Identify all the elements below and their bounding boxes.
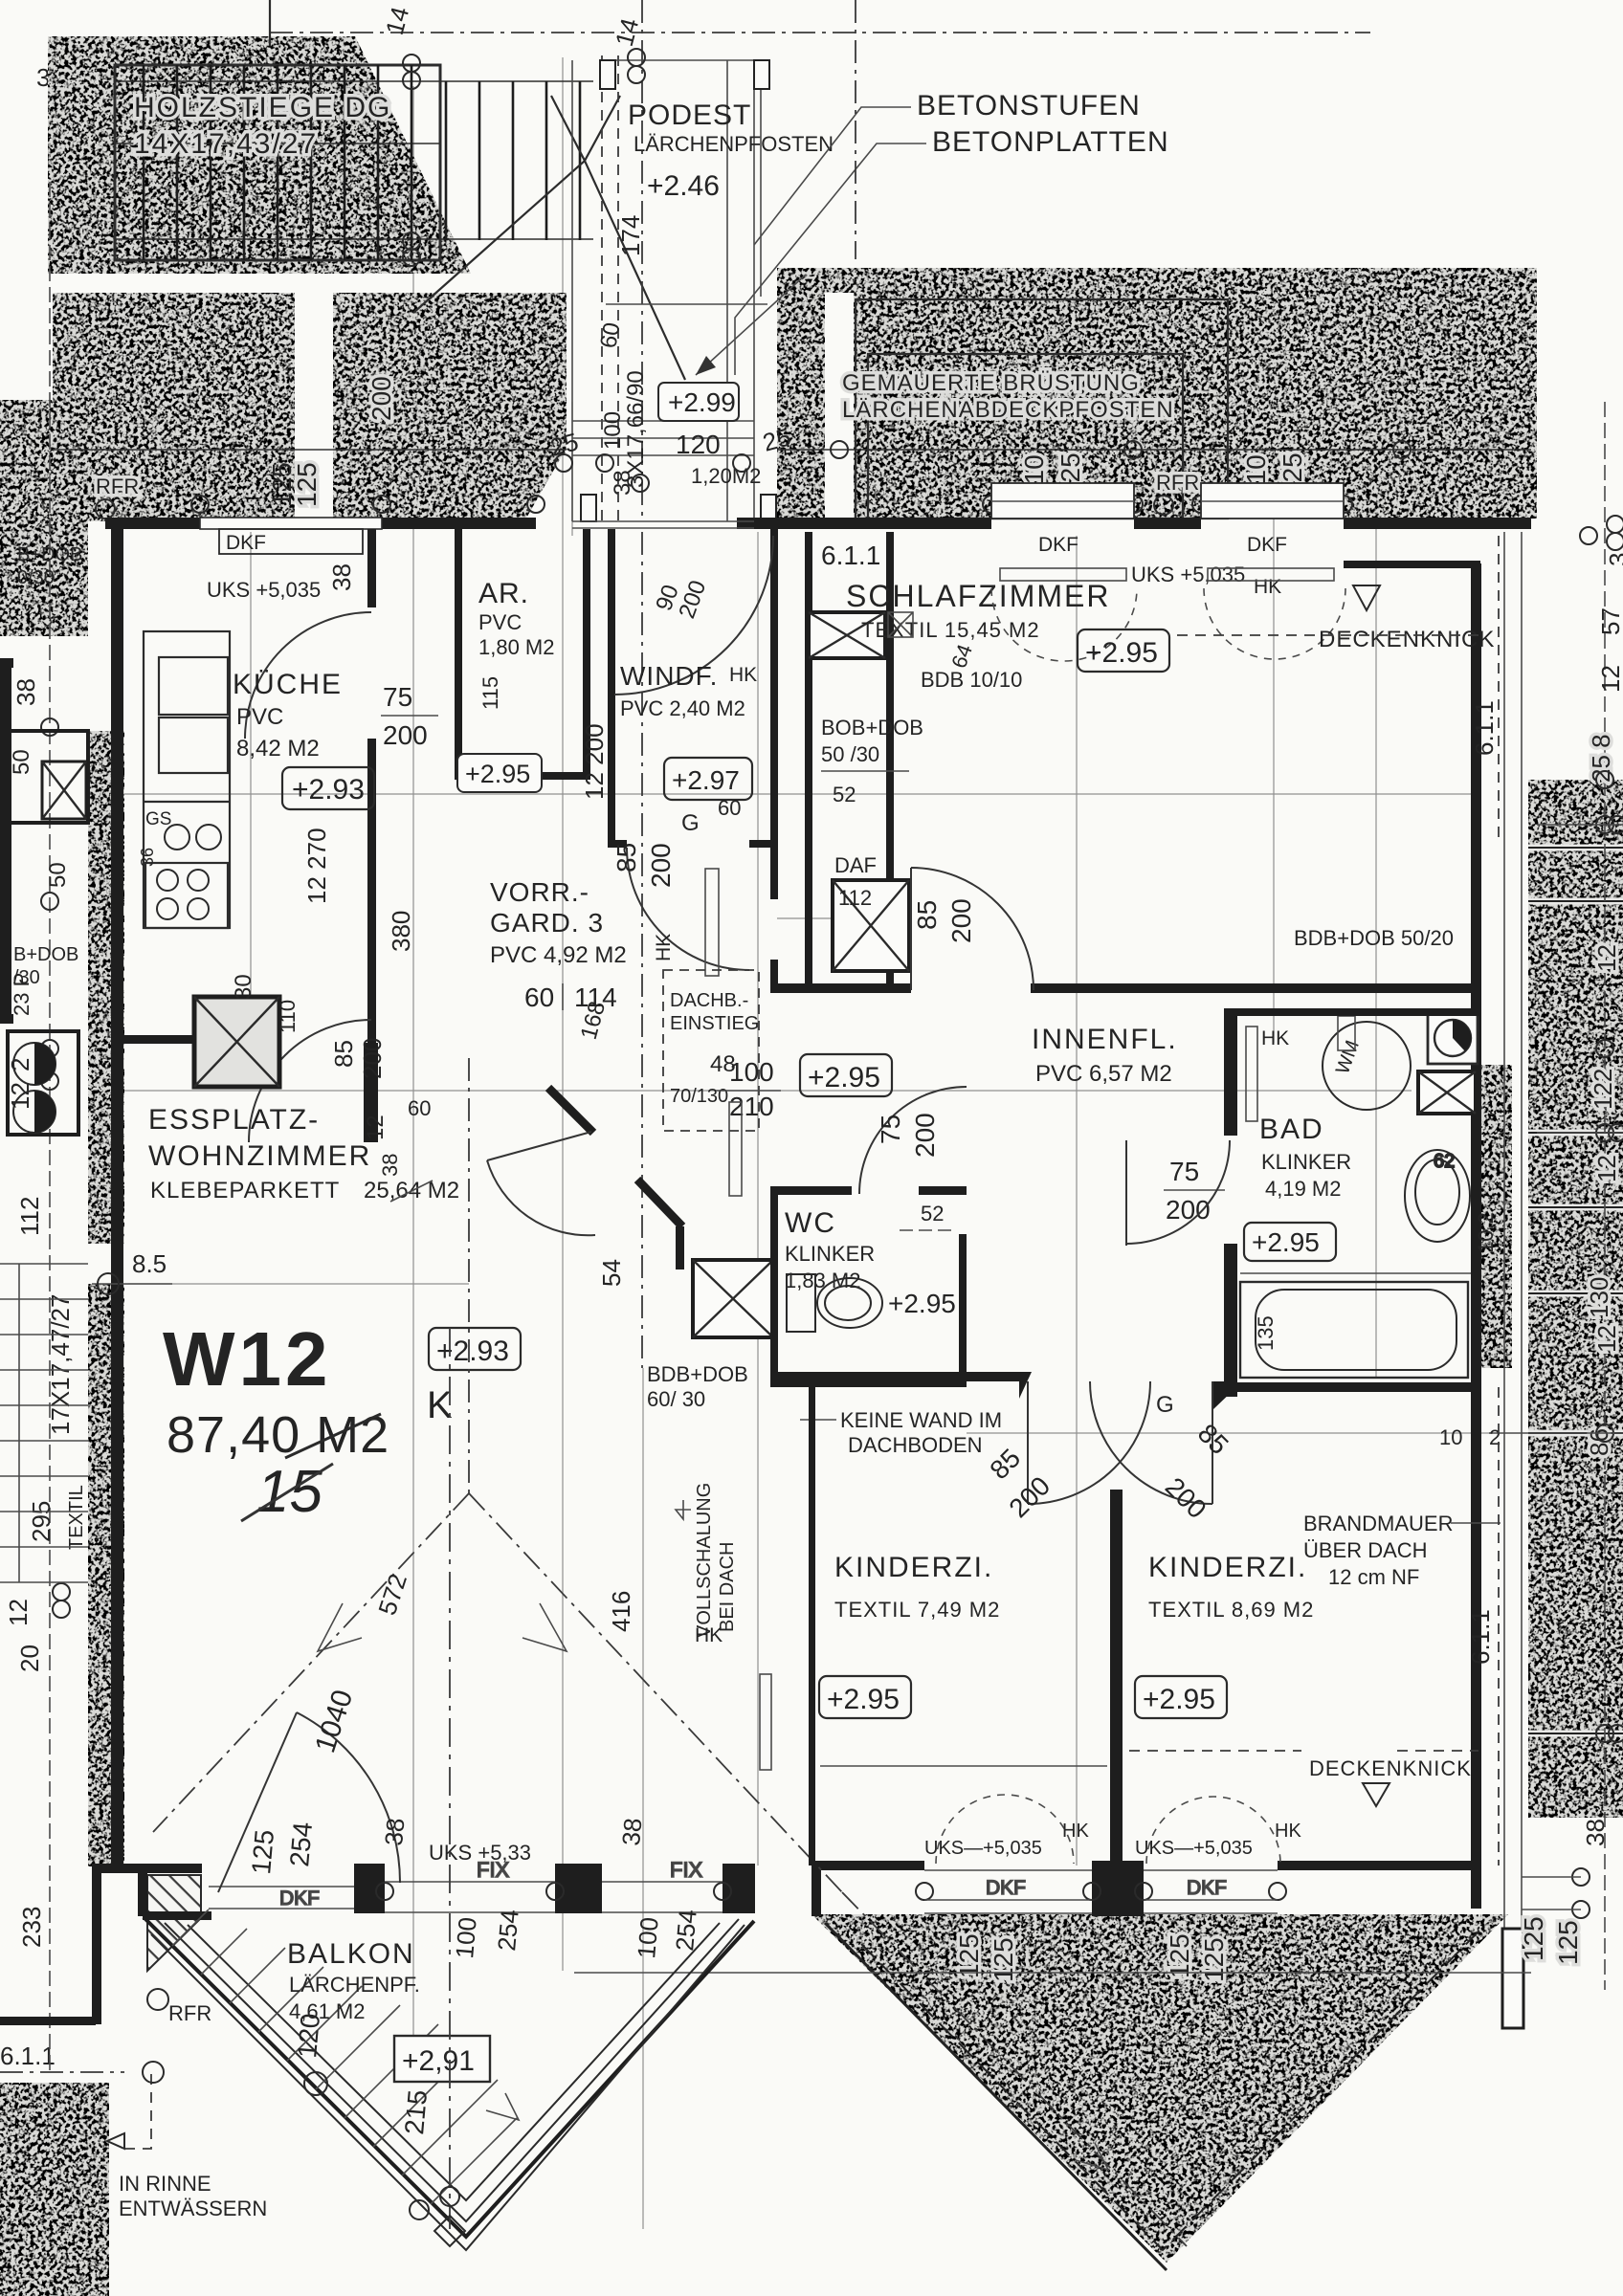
svg-text:100: 100 — [600, 411, 626, 450]
svg-text:87,40 M2: 87,40 M2 — [167, 1406, 389, 1464]
svg-text:ENTWÄSSERN: ENTWÄSSERN — [119, 2197, 267, 2220]
svg-text:4,19 M2: 4,19 M2 — [1265, 1177, 1342, 1201]
svg-text:6.1.1: 6.1.1 — [1470, 700, 1499, 756]
svg-text:G: G — [681, 810, 700, 836]
svg-text:295: 295 — [27, 1501, 56, 1542]
svg-text:12 270: 12 270 — [302, 828, 331, 904]
svg-text:38: 38 — [379, 1817, 410, 1846]
svg-text:KÜCHE: KÜCHE — [233, 669, 343, 700]
svg-text:DECKENKNICK: DECKENKNICK — [1309, 1756, 1472, 1780]
svg-text:38: 38 — [11, 678, 40, 706]
svg-text:FIX: FIX — [670, 1858, 703, 1882]
svg-text:+2.95: +2.95 — [888, 1289, 956, 1318]
svg-text:12: 12 — [363, 1115, 389, 1140]
svg-text:+2.95: +2.95 — [1252, 1227, 1320, 1257]
svg-text:W12: W12 — [163, 1316, 332, 1402]
svg-text:UKS +5,035: UKS +5,035 — [1131, 563, 1245, 586]
svg-text:DKF: DKF — [279, 1888, 320, 1910]
svg-text:PVC 6,57 M2: PVC 6,57 M2 — [1035, 1061, 1172, 1087]
svg-text:52: 52 — [833, 783, 856, 806]
svg-text:114: 114 — [574, 982, 617, 1012]
svg-text:233: 233 — [17, 1907, 46, 1948]
svg-text:57: 57 — [1596, 607, 1623, 635]
svg-text:HK: HK — [1062, 1821, 1089, 1842]
svg-text:B+DOB: B+DOB — [17, 544, 82, 565]
svg-text:125: 125 — [267, 462, 297, 507]
svg-text:12: 12 — [1596, 665, 1623, 693]
svg-text:WINDF.: WINDF. — [620, 661, 718, 691]
svg-text:52: 52 — [921, 1202, 944, 1225]
svg-text:GEMAUERTE BRÜSTUNG: GEMAUERTE BRÜSTUNG — [842, 370, 1140, 396]
svg-text:BDB+DOB 50/20: BDB+DOB 50/20 — [1294, 926, 1454, 950]
svg-text:50 /30: 50 /30 — [821, 742, 879, 766]
svg-text:HK: HK — [1261, 1027, 1289, 1049]
svg-text:380: 380 — [387, 911, 415, 952]
svg-text:112: 112 — [15, 1197, 44, 1236]
svg-text:125: 125 — [1553, 1920, 1583, 1965]
svg-text:IN RINNE: IN RINNE — [119, 2172, 211, 2196]
svg-text:DKF: DKF — [226, 532, 266, 554]
svg-text:12 cm NF: 12 cm NF — [1328, 1565, 1419, 1589]
svg-text:75: 75 — [383, 682, 412, 712]
svg-text:KINDERZI.: KINDERZI. — [834, 1552, 993, 1583]
svg-text:3: 3 — [1604, 553, 1623, 566]
svg-text:1,80 M2: 1,80 M2 — [478, 635, 555, 659]
svg-text:12: 12 — [1592, 1325, 1621, 1353]
svg-text:174: 174 — [616, 215, 645, 256]
svg-text:GARD. 3: GARD. 3 — [490, 908, 604, 938]
svg-text:/30: /30 — [13, 967, 40, 988]
svg-text:+2.99: +2.99 — [668, 387, 736, 417]
svg-text:+2.95: +2.95 — [827, 1684, 900, 1715]
svg-text:125: 125 — [989, 1937, 1018, 1982]
svg-text:125: 125 — [1165, 1933, 1194, 1978]
svg-text:WC: WC — [785, 1207, 836, 1239]
svg-text:112: 112 — [838, 886, 872, 910]
svg-text:HK: HK — [729, 664, 757, 686]
svg-text:25 8: 25 8 — [1587, 734, 1615, 783]
svg-text:200: 200 — [383, 720, 428, 750]
svg-text:LÄRCHENPF.: LÄRCHENPF. — [289, 1973, 420, 1997]
svg-text:85: 85 — [611, 843, 641, 872]
svg-text:HK: HK — [1275, 1821, 1301, 1842]
svg-text:DKF: DKF — [1038, 534, 1078, 556]
svg-text:DACHB.-: DACHB.- — [670, 990, 748, 1011]
svg-text:10: 10 — [1439, 1425, 1462, 1449]
svg-text:VOLLSCHALUNG: VOLLSCHALUNG — [694, 1483, 715, 1638]
svg-text:125: 125 — [1199, 1937, 1229, 1982]
svg-text:85: 85 — [912, 900, 942, 930]
svg-text:60: 60 — [408, 1096, 431, 1120]
svg-text:6.1.1: 6.1.1 — [0, 2042, 56, 2070]
svg-text:TEXTIL 7,49 M2: TEXTIL 7,49 M2 — [834, 1598, 1000, 1622]
svg-text:UKS—+5,035: UKS—+5,035 — [1135, 1838, 1253, 1859]
svg-text:200: 200 — [646, 843, 676, 888]
svg-text:KLEBEPARKETT: KLEBEPARKETT — [150, 1178, 340, 1203]
svg-text:DACHBODEN: DACHBODEN — [848, 1433, 983, 1457]
svg-text:RFR: RFR — [168, 2001, 211, 2025]
svg-text:125: 125 — [954, 1933, 984, 1978]
svg-text:254: 254 — [492, 1909, 524, 1953]
svg-text:0/30: 0/30 — [17, 567, 55, 588]
svg-text:62: 62 — [1434, 1151, 1455, 1172]
svg-text:210: 210 — [729, 1092, 774, 1121]
svg-text:B+DOB: B+DOB — [13, 944, 78, 965]
svg-text:RFR: RFR — [96, 475, 139, 498]
svg-text:70/130: 70/130 — [670, 1086, 728, 1107]
svg-text:DECKENKNICK: DECKENKNICK — [1319, 627, 1495, 652]
svg-text:BDB 10/10: BDB 10/10 — [921, 668, 1022, 692]
svg-text:30: 30 — [231, 974, 256, 1000]
svg-text:12 200: 12 200 — [580, 723, 609, 800]
svg-text:SCHLAFZIMMER: SCHLAFZIMMER — [846, 579, 1110, 613]
svg-text:200: 200 — [910, 1113, 940, 1158]
svg-text:INNENFL.: INNENFL. — [1032, 1024, 1178, 1055]
svg-text:BOB+DOB: BOB+DOB — [821, 716, 923, 740]
svg-text:G: G — [1156, 1392, 1174, 1418]
svg-text:DKF: DKF — [986, 1877, 1026, 1899]
svg-text:8,42 M2: 8,42 M2 — [236, 736, 320, 762]
svg-text:12: 12 — [1592, 1155, 1621, 1182]
svg-text:75: 75 — [876, 1115, 905, 1144]
svg-text:WOHNZIMMER: WOHNZIMMER — [148, 1140, 371, 1172]
svg-text:120: 120 — [292, 2012, 325, 2059]
svg-text:+2.46: +2.46 — [647, 170, 720, 202]
svg-text:HK: HK — [653, 934, 675, 961]
svg-text:10,2: 10,2 — [1474, 1212, 1498, 1253]
svg-text:BETONSTUFEN: BETONSTUFEN — [917, 90, 1141, 121]
svg-text:100: 100 — [632, 1916, 664, 1960]
svg-text:AR.: AR. — [478, 578, 529, 609]
svg-text:UKS +5,33: UKS +5,33 — [429, 1841, 531, 1865]
svg-text:PVC: PVC — [236, 704, 283, 730]
svg-text:60/ 30: 60/ 30 — [647, 1387, 705, 1411]
svg-text:HK: HK — [695, 1624, 723, 1646]
svg-text:416: 416 — [607, 1591, 635, 1632]
svg-text:50: 50 — [9, 749, 34, 775]
svg-text:75: 75 — [1169, 1157, 1199, 1186]
svg-text:PVC 2,40 M2: PVC 2,40 M2 — [620, 696, 745, 720]
svg-text:LÄRCHENABDECKPFOSTEN: LÄRCHENABDECKPFOSTEN — [842, 397, 1174, 423]
svg-text:HOLZSTIEGE DG: HOLZSTIEGE DG — [134, 92, 391, 123]
svg-text:BDB+DOB: BDB+DOB — [647, 1362, 748, 1386]
svg-text:UKS—+5,035: UKS—+5,035 — [924, 1838, 1042, 1859]
svg-text:TEXTIL: TEXTIL — [66, 1485, 87, 1550]
svg-text:14X17,43/27: 14X17,43/27 — [134, 128, 318, 160]
svg-text:38: 38 — [378, 1154, 402, 1177]
svg-text:VORR.-: VORR.- — [490, 877, 589, 907]
svg-text:+2.95: +2.95 — [808, 1062, 880, 1093]
svg-text:BAD: BAD — [1259, 1114, 1324, 1145]
svg-text:215: 215 — [399, 2088, 433, 2135]
svg-text:254: 254 — [670, 1909, 702, 1953]
svg-text:2: 2 — [6, 1058, 34, 1071]
svg-text:BALKON: BALKON — [287, 1938, 415, 1970]
svg-text:20: 20 — [15, 1645, 44, 1672]
svg-text:120: 120 — [676, 430, 721, 459]
svg-text:60: 60 — [595, 320, 625, 350]
svg-text:+2.95: +2.95 — [1143, 1684, 1215, 1715]
svg-text:UKS +5,035: UKS +5,035 — [207, 578, 321, 602]
svg-text:KEINE WAND IM: KEINE WAND IM — [840, 1408, 1002, 1432]
svg-text:6.1.1: 6.1.1 — [1466, 1609, 1495, 1665]
svg-text:130: 130 — [1585, 1277, 1613, 1318]
svg-text:KLINKER: KLINKER — [785, 1242, 875, 1266]
svg-text:KINDERZI.: KINDERZI. — [1148, 1552, 1307, 1583]
svg-text:ESSPLATZ-: ESSPLATZ- — [148, 1104, 320, 1136]
svg-text:+2.93: +2.93 — [436, 1336, 509, 1367]
svg-text:122: 122 — [1589, 1069, 1617, 1110]
svg-text:PVC: PVC — [478, 610, 522, 634]
svg-text:+2.97: +2.97 — [672, 765, 740, 795]
svg-text:12: 12 — [1592, 944, 1621, 972]
svg-text:200: 200 — [367, 376, 396, 421]
svg-text:LÄRCHENPFOSTEN: LÄRCHENPFOSTEN — [634, 132, 834, 156]
svg-text:BRANDMAUER: BRANDMAUER — [1303, 1512, 1453, 1535]
svg-text:BETONPLATTEN: BETONPLATTEN — [932, 126, 1169, 158]
svg-text:17X17,47/27: 17X17,47/27 — [46, 1294, 75, 1435]
svg-text:135: 135 — [1254, 1315, 1278, 1351]
svg-text:200: 200 — [358, 1038, 387, 1079]
svg-text:36: 36 — [138, 848, 157, 867]
svg-text:KLINKER: KLINKER — [1261, 1150, 1351, 1174]
svg-text:DAF: DAF — [834, 853, 877, 877]
svg-text:BEI DACH: BEI DACH — [717, 1542, 738, 1632]
svg-text:TEXTIL 8,69 M2: TEXTIL 8,69 M2 — [1148, 1598, 1314, 1622]
svg-text:60: 60 — [718, 796, 741, 820]
svg-text:1,20M2: 1,20M2 — [691, 464, 761, 488]
svg-text:85: 85 — [329, 1040, 358, 1068]
svg-text:+2.95: +2.95 — [1085, 637, 1158, 669]
svg-text:GS: GS — [145, 809, 171, 829]
svg-text:PVC 4,92 M2: PVC 4,92 M2 — [490, 942, 627, 968]
svg-text:54: 54 — [597, 1259, 626, 1287]
svg-text:110: 110 — [276, 1000, 300, 1033]
svg-text:PODEST: PODEST — [628, 99, 751, 131]
svg-text:125: 125 — [1519, 1916, 1548, 1961]
svg-text:6.1.1: 6.1.1 — [821, 541, 880, 570]
svg-text:115: 115 — [478, 676, 502, 710]
svg-text:+2.93: +2.93 — [292, 774, 365, 806]
svg-text:EINSTIEG: EINSTIEG — [670, 1013, 759, 1034]
svg-text:DKF: DKF — [1247, 534, 1287, 556]
svg-text:RFR: RFR — [1156, 471, 1199, 495]
svg-text:12: 12 — [4, 1599, 33, 1626]
svg-text:+2.95: +2.95 — [465, 760, 530, 788]
svg-text:+2,91: +2,91 — [402, 2045, 475, 2077]
svg-text:38: 38 — [327, 563, 356, 591]
svg-text:254: 254 — [284, 1821, 318, 1867]
svg-text:100: 100 — [450, 1916, 482, 1960]
svg-text:125: 125 — [246, 1828, 279, 1875]
svg-text:200: 200 — [946, 898, 976, 943]
svg-text:38: 38 — [616, 1817, 647, 1846]
svg-text:50: 50 — [45, 862, 71, 888]
svg-text:DKF: DKF — [1187, 1877, 1227, 1899]
svg-text:38: 38 — [1581, 1819, 1610, 1846]
svg-text:HK: HK — [1254, 576, 1281, 598]
svg-text:60: 60 — [524, 982, 554, 1012]
svg-text:K: K — [427, 1384, 453, 1426]
svg-text:100: 100 — [729, 1057, 774, 1087]
svg-text:ÜBER DACH: ÜBER DACH — [1303, 1538, 1428, 1562]
svg-text:8.5: 8.5 — [132, 1249, 167, 1278]
